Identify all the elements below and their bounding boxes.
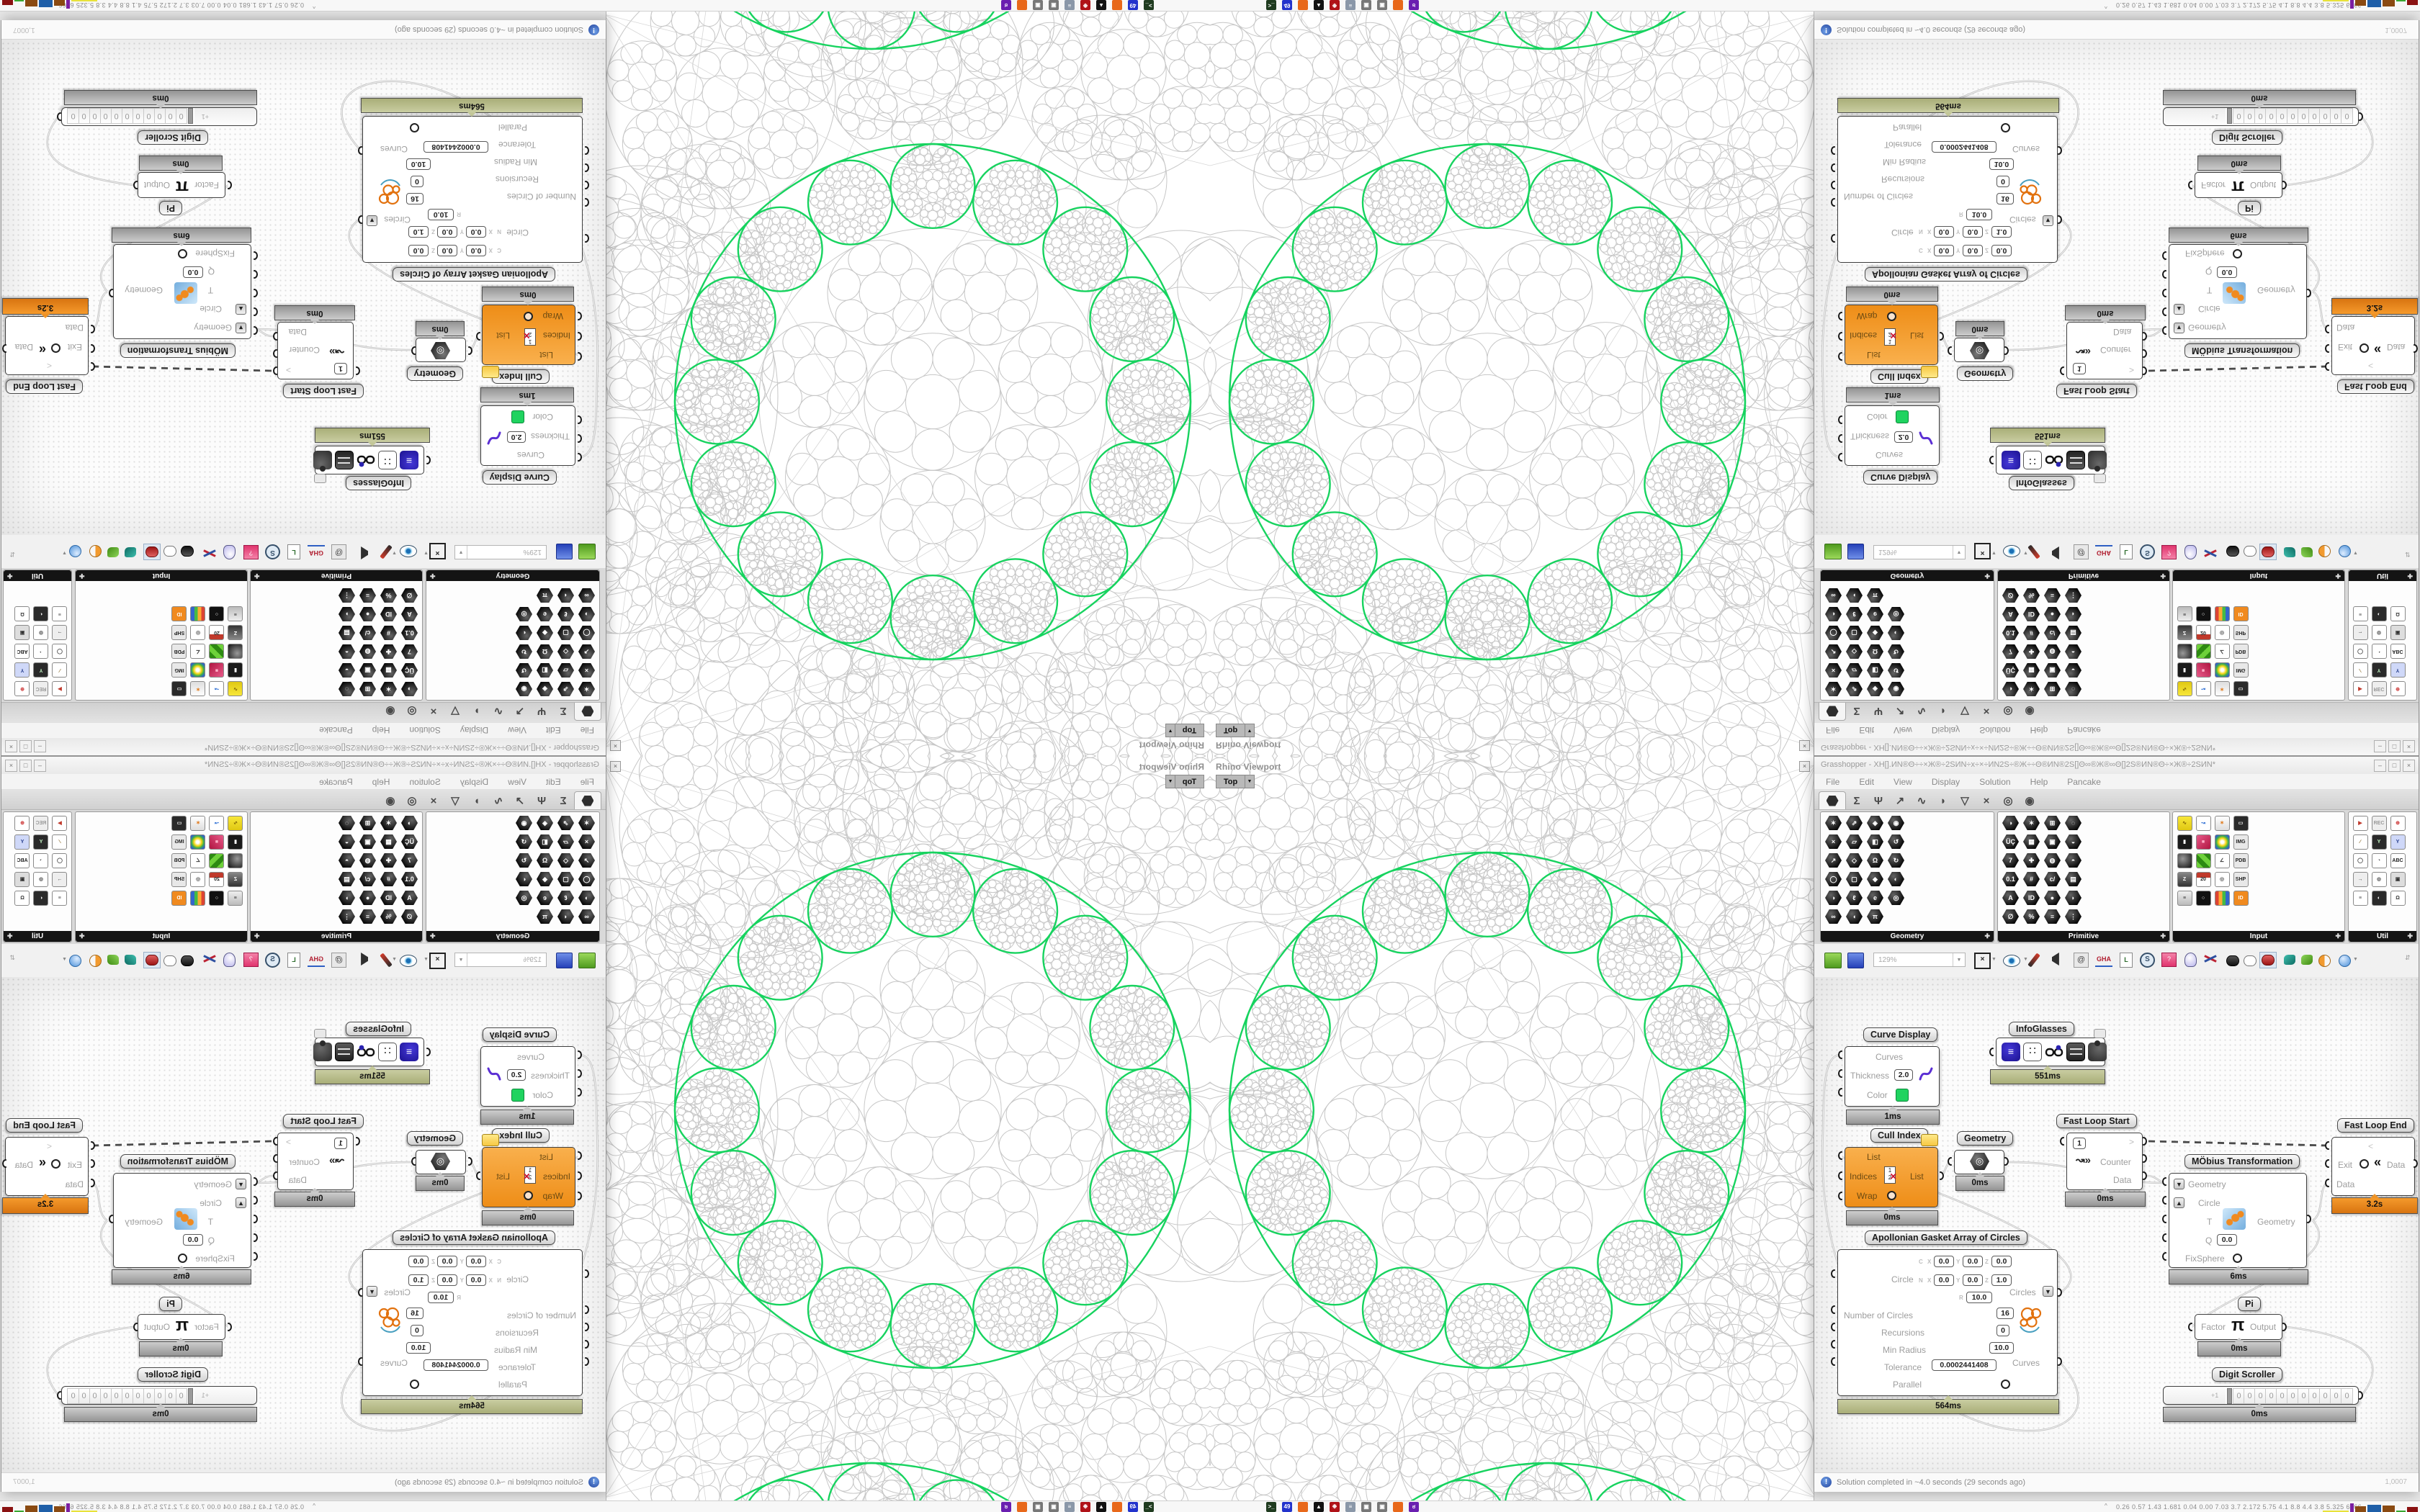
node-infoglasses[interactable]: ≡ ∷ [1996, 446, 2105, 474]
maze-app-icon[interactable]: ▣ [1049, 1502, 1059, 1512]
port-factor-in[interactable] [2188, 181, 2195, 189]
node-mobius[interactable]: ▼ Geometry ▲ Circle T Geometry Q 0.0 Fix… [113, 244, 251, 339]
digit-cell[interactable]: 0 [110, 108, 122, 124]
min-radius-value[interactable]: 10.0 [1989, 158, 2014, 170]
taskbar[interactable]: ^ 0.26 0.57 1.43 1.681 0.04 0.00 7.03 3.… [1210, 0, 2420, 12]
port-infoglasses-in[interactable] [1989, 456, 1996, 464]
port-list-in[interactable] [575, 1151, 582, 1160]
port-mobius-geometry-out[interactable] [109, 289, 116, 297]
port-apollonian-circle-in[interactable] [582, 1269, 589, 1278]
node-label-geometry[interactable]: Geometry [1957, 366, 2013, 381]
node-cull-index[interactable]: List Indices 12 × List Wrap [1845, 305, 1938, 365]
rhino-viewport[interactable]: Rhino Viewport Top ▼ × [606, 11, 1210, 756]
node-fast-loop-start[interactable]: 1 > ↝» Counter Data [277, 322, 354, 379]
c-x-value[interactable]: 0.0 [466, 1256, 486, 1267]
digit-cell[interactable]: 0 [89, 1388, 101, 1404]
n-z-value[interactable]: 1.0 [1991, 1274, 2012, 1286]
node-infoglasses[interactable]: ≡ ∷ [315, 1038, 424, 1066]
port-thickness-in[interactable] [1838, 1069, 1845, 1078]
maze-app-2-icon[interactable]: ▣ [1033, 1502, 1043, 1512]
node-label-curve-display[interactable]: Curve Display [1863, 470, 1937, 485]
node-fast-loop-start[interactable]: 1 > ↝» Counter Data [2066, 1133, 2143, 1190]
port-circles-out[interactable] [358, 215, 365, 224]
color-swatch[interactable] [511, 410, 524, 423]
min-radius-value[interactable]: 10.0 [1989, 1342, 2014, 1354]
node-label-apollonian[interactable]: Apollonian Gasket Array of Circles [393, 1230, 555, 1245]
port-indices-in[interactable] [1838, 332, 1845, 341]
port-counter-out[interactable] [2140, 349, 2147, 358]
fixsphere-toggle[interactable] [178, 1254, 187, 1263]
port-mobius-t-in[interactable] [2162, 289, 2169, 297]
n-x-value[interactable]: 0.0 [1934, 1274, 1954, 1286]
fixsphere-toggle[interactable] [2233, 1254, 2242, 1263]
node-label-digit-scroller[interactable]: Digit Scroller [138, 1367, 208, 1382]
digit-cell[interactable]: 0 [89, 108, 101, 124]
digit-cell[interactable]: 0 [2341, 108, 2353, 124]
digit-cell[interactable]: 0 [78, 108, 90, 124]
recursions-value[interactable]: 0 [1996, 176, 2009, 187]
port-geometry-out[interactable] [411, 1157, 418, 1166]
port-mobius-circle-in[interactable] [251, 1196, 258, 1205]
parallel-toggle[interactable] [2001, 123, 2010, 132]
node-label-geometry[interactable]: Geometry [407, 1131, 463, 1146]
digit-cell[interactable]: 0 [153, 1388, 166, 1404]
node-fast-loop-end[interactable]: < Exit « Data Data [2331, 316, 2415, 375]
digit-cell[interactable]: 0 [164, 108, 176, 124]
node-mobius[interactable]: ▼ Geometry ▲ Circle T Geometry Q 0.0 Fix… [2169, 244, 2307, 339]
node-label-apollonian[interactable]: Apollonian Gasket Array of Circles [393, 267, 555, 282]
terminal-app-icon[interactable]: >_ [1144, 0, 1154, 10]
port-apollonian-count-in[interactable] [582, 1305, 589, 1314]
port-digit-out[interactable] [2356, 1391, 2363, 1400]
port-output-out[interactable] [133, 1323, 140, 1331]
n-x-value[interactable]: 0.0 [466, 1274, 486, 1286]
tolerance-value[interactable]: 0.0002441408 [1932, 1359, 1996, 1371]
maze-app-2-icon[interactable]: ▣ [1377, 0, 1387, 10]
port-apollonian-circle-in[interactable] [1831, 234, 1838, 243]
port-color-in[interactable] [1838, 1088, 1845, 1097]
digit-cell[interactable]: 0 [175, 1388, 187, 1404]
node-label-digit-scroller[interactable]: Digit Scroller [2212, 1367, 2282, 1382]
exit-toggle[interactable] [2359, 343, 2369, 353]
note-bubble-icon[interactable] [314, 474, 326, 483]
node-infoglasses[interactable]: ≡ ∷ [315, 446, 424, 474]
port-mobius-fixsphere-in[interactable] [2162, 1252, 2169, 1261]
port-curves-out[interactable] [2055, 1357, 2062, 1366]
port-mobius-q-in[interactable] [251, 270, 258, 279]
note-bubble-icon[interactable] [2094, 474, 2106, 483]
c-z-value[interactable]: 0.0 [1991, 1256, 2012, 1267]
port-circles-out[interactable] [2055, 215, 2062, 224]
flame-app-2-icon[interactable] [1017, 0, 1027, 10]
port-iterations-in[interactable] [353, 1137, 360, 1146]
color-swatch[interactable] [511, 1089, 524, 1102]
digit-cell[interactable]: 0 [164, 1388, 176, 1404]
node-label-digit-scroller[interactable]: Digit Scroller [138, 130, 208, 145]
exit-toggle[interactable] [51, 1159, 60, 1169]
port-infoglasses-in[interactable] [423, 456, 431, 464]
n-y-value[interactable]: 0.0 [1963, 1274, 1983, 1286]
node-infoglasses[interactable]: ≡ ∷ [1996, 1038, 2105, 1066]
flame-app-2-icon[interactable] [1393, 1502, 1403, 1512]
node-cull-index[interactable]: List Indices 12 × List Wrap [482, 1147, 575, 1207]
digit-cell[interactable]: 0 [132, 1388, 144, 1404]
port-apollonian-tolerance-in[interactable] [1831, 1357, 1838, 1366]
port-apollonian-tolerance-in[interactable] [1831, 146, 1838, 155]
viewport-view-dropdown[interactable]: Top ▼ [1165, 724, 1204, 737]
port-geometry-in[interactable] [465, 346, 472, 355]
node-label-infoglasses[interactable]: InfoGlasses [346, 1022, 411, 1036]
taskbar[interactable]: ^ 0.26 0.57 1.43 1.681 0.04 0.00 7.03 3.… [1210, 1500, 2420, 1512]
recursions-value[interactable]: 0 [411, 1325, 423, 1336]
digit-cell[interactable]: 0 [67, 1388, 79, 1404]
port-mobius-geometry-in[interactable] [2162, 1177, 2169, 1186]
port-wrap-in[interactable] [575, 312, 582, 320]
n-x-value[interactable]: 0.0 [1934, 226, 1954, 238]
c-y-value[interactable]: 0.0 [437, 245, 457, 256]
digit-cell[interactable]: 0 [143, 108, 155, 124]
ornament-app-icon[interactable]: ❉ [1330, 0, 1340, 10]
port-fle-data-out[interactable] [2, 344, 9, 353]
port-data-in[interactable] [88, 1179, 95, 1187]
n-z-value[interactable]: 1.0 [408, 226, 429, 238]
rhino-viewport[interactable]: Rhino Viewport Top ▼ × [606, 756, 1210, 1501]
port-data-out[interactable] [2140, 332, 2147, 341]
r-value[interactable]: 10.0 [428, 1292, 454, 1303]
maze-app-2-icon[interactable]: ▣ [1377, 1502, 1387, 1512]
port-thickness-in[interactable] [575, 434, 582, 443]
parallel-toggle[interactable] [2001, 1380, 2010, 1389]
port-factor-in[interactable] [225, 1323, 232, 1331]
ornament-app-icon[interactable]: ❉ [1080, 0, 1090, 10]
n-z-value[interactable]: 1.0 [408, 1274, 429, 1286]
node-pi[interactable]: Factor π Output [2195, 172, 2282, 198]
port-mobius-geometry-out[interactable] [2304, 1215, 2311, 1223]
port-apollonian-recursions-in[interactable] [582, 1323, 589, 1331]
node-label-apollonian[interactable]: Apollonian Gasket Array of Circles [1865, 267, 2027, 282]
files-app-icon[interactable]: ≡ [1065, 0, 1075, 10]
c-x-value[interactable]: 0.0 [1934, 245, 1954, 256]
parallel-toggle[interactable] [410, 123, 419, 132]
port-mobius-circle-in[interactable] [251, 307, 258, 316]
maze-app-2-icon[interactable]: ▣ [1033, 0, 1043, 10]
maze-app-icon[interactable]: ▣ [1049, 0, 1059, 10]
port-counter-out[interactable] [2140, 1154, 2147, 1163]
port-mobius-q-in[interactable] [2162, 270, 2169, 279]
viewport-close-button[interactable]: × [1799, 740, 1810, 751]
node-geometry[interactable]: ◎ [1954, 1150, 2004, 1174]
port-digit-out[interactable] [57, 1391, 64, 1400]
port-apollonian-minradius-in[interactable] [1831, 163, 1838, 172]
warning-tag-icon[interactable] [482, 366, 499, 378]
node-curve-display[interactable]: Curves Thickness 2.0 Color [480, 405, 575, 466]
tray-collapse-icon[interactable]: ^ [2105, 3, 2107, 9]
iterations-value[interactable]: 1 [2073, 363, 2086, 374]
node-label-mobius[interactable]: MÖbius Transformation [2184, 343, 2300, 358]
port-exit-in[interactable] [88, 344, 95, 353]
number-of-circles-value[interactable]: 16 [406, 1308, 423, 1319]
port-data-out[interactable] [273, 1171, 280, 1180]
node-label-mobius[interactable]: MÖbius Transformation [2184, 1154, 2300, 1169]
maze-app-icon[interactable]: ▣ [1361, 0, 1371, 10]
c-y-value[interactable]: 0.0 [1963, 245, 1983, 256]
digit-cell[interactable]: 0 [121, 108, 133, 124]
port-digit-out[interactable] [57, 112, 64, 121]
r-value[interactable]: 10.0 [1966, 1292, 1992, 1303]
port-data-out[interactable] [273, 332, 280, 341]
node-apollonian[interactable]: C X 0.0 Y 0.0 Z 0.0 Circle N X 0.0 Y 0.0… [1837, 116, 2058, 263]
viewport-close-button[interactable]: × [1799, 761, 1810, 772]
port-color-in[interactable] [1838, 415, 1845, 424]
port-mobius-t-in[interactable] [251, 1215, 258, 1223]
node-label-cull-index[interactable]: Cull Index [1870, 1128, 1928, 1143]
node-label-fast-loop-end[interactable]: Fast Loop End [6, 379, 83, 394]
port-curves-in[interactable] [575, 453, 582, 462]
port-apollonian-count-in[interactable] [1831, 198, 1838, 207]
port-apollonian-count-in[interactable] [1831, 1305, 1838, 1314]
recursions-value[interactable]: 0 [1996, 1325, 2009, 1336]
node-curve-display[interactable]: Curves Thickness 2.0 Color [1845, 1046, 1940, 1107]
owl-app-icon[interactable]: ಠ [1001, 1502, 1011, 1512]
note-bubble-icon[interactable] [2094, 1029, 2106, 1038]
parallel-toggle[interactable] [410, 1380, 419, 1389]
port-color-in[interactable] [575, 1088, 582, 1097]
floppy-49-app-icon[interactable]: 49 [1128, 1502, 1138, 1512]
files-app-icon[interactable]: ≡ [1345, 0, 1355, 10]
digit-cell[interactable]: 0 [132, 108, 144, 124]
port-output-out[interactable] [2280, 1323, 2287, 1331]
warning-tag-icon[interactable] [1921, 366, 1938, 378]
port-factor-in[interactable] [2188, 1323, 2195, 1331]
port-output-out[interactable] [2280, 181, 2287, 189]
port-mobius-geometry-in[interactable] [251, 1177, 258, 1186]
node-label-cull-index[interactable]: Cull Index [492, 1128, 550, 1143]
port-data-in[interactable] [2325, 1179, 2332, 1187]
node-fast-loop-start[interactable]: 1 > ↝» Counter Data [2066, 322, 2143, 379]
port-geometry-out[interactable] [411, 346, 418, 355]
taskbar[interactable]: ^ 0.26 0.57 1.43 1.681 0.04 0.00 7.03 3.… [0, 0, 1210, 12]
node-label-cull-index[interactable]: Cull Index [492, 369, 550, 384]
port-curves-out[interactable] [2055, 146, 2062, 155]
viewport-view-dropdown[interactable]: Top ▼ [1216, 724, 1255, 737]
tray-collapse-icon[interactable]: ^ [2105, 1503, 2107, 1509]
port-curves-in[interactable] [1838, 1050, 1845, 1059]
port-list-out[interactable] [476, 332, 483, 341]
port-apollonian-recursions-in[interactable] [1831, 1323, 1838, 1331]
q-value[interactable]: 0.0 [183, 1234, 203, 1246]
node-label-fast-loop-start[interactable]: Fast Loop Start [283, 384, 364, 398]
number-of-circles-value[interactable]: 16 [1996, 1308, 2014, 1319]
port-curves-in[interactable] [1838, 453, 1845, 462]
digit-cell[interactable]: 0 [2341, 1388, 2353, 1404]
node-label-geometry[interactable]: Geometry [1957, 1131, 2013, 1146]
port-mobius-t-in[interactable] [2162, 1215, 2169, 1223]
flame-app-icon[interactable] [1112, 1502, 1122, 1512]
number-of-circles-value[interactable]: 16 [406, 193, 423, 204]
port-apollonian-tolerance-in[interactable] [582, 146, 589, 155]
c-x-value[interactable]: 0.0 [466, 245, 486, 256]
port-iterations-in[interactable] [2060, 366, 2067, 375]
port-color-in[interactable] [575, 415, 582, 424]
port-circles-out[interactable] [358, 1288, 365, 1297]
c-z-value[interactable]: 0.0 [1991, 245, 2012, 256]
port-apollonian-tolerance-in[interactable] [582, 1357, 589, 1366]
port-fle-data-out[interactable] [2, 1159, 9, 1168]
owl-app-icon[interactable]: ಠ [1409, 0, 1419, 10]
scroller-handle[interactable] [188, 1388, 193, 1404]
warning-tag-icon[interactable] [1921, 1134, 1938, 1146]
port-gate-in[interactable] [2325, 1141, 2332, 1150]
node-label-curve-display[interactable]: Curve Display [483, 1027, 557, 1042]
recursions-value[interactable]: 0 [411, 176, 423, 187]
port-iterations-in[interactable] [353, 366, 360, 375]
port-fle-data-out[interactable] [2411, 1159, 2418, 1168]
node-cull-index[interactable]: List Indices 12 × List Wrap [1845, 1147, 1938, 1207]
port-mobius-fixsphere-in[interactable] [251, 251, 258, 260]
port-gate-in[interactable] [88, 362, 95, 371]
port-indices-in[interactable] [575, 1171, 582, 1180]
node-fast-loop-end[interactable]: < Exit « Data Data [5, 1137, 89, 1196]
thickness-value[interactable]: 2.0 [1894, 1069, 1913, 1081]
port-indices-in[interactable] [575, 332, 582, 341]
node-digit-scroller[interactable]: +1 00000000000 [2163, 107, 2359, 126]
warning-tag-icon[interactable] [482, 1134, 499, 1146]
port-wrap-in[interactable] [1838, 1192, 1845, 1200]
viewport-close-button[interactable]: × [610, 740, 621, 751]
node-label-pi[interactable]: Pi [159, 201, 182, 215]
port-data-in[interactable] [2325, 325, 2332, 333]
note-bubble-icon[interactable] [314, 1029, 326, 1038]
port-mobius-geometry-out[interactable] [109, 1215, 116, 1223]
port-geometry-out[interactable] [2002, 1157, 2009, 1166]
node-apollonian[interactable]: C X 0.0 Y 0.0 Z 0.0 Circle N X 0.0 Y 0.0… [362, 1249, 583, 1396]
port-mobius-circle-in[interactable] [2162, 1196, 2169, 1205]
port-thickness-in[interactable] [1838, 434, 1845, 443]
node-cull-index[interactable]: List Indices 12 × List Wrap [482, 305, 575, 365]
port-infoglasses-in[interactable] [423, 1048, 431, 1056]
node-apollonian[interactable]: C X 0.0 Y 0.0 Z 0.0 Circle N X 0.0 Y 0.0… [362, 116, 583, 263]
viewport-close-button[interactable]: × [610, 761, 621, 772]
tray-collapse-icon[interactable]: ^ [313, 1503, 315, 1509]
mountain-app-icon[interactable]: ▲ [1096, 0, 1106, 10]
port-wrap-in[interactable] [1838, 312, 1845, 320]
port-apollonian-minradius-in[interactable] [582, 163, 589, 172]
c-y-value[interactable]: 0.0 [1963, 1256, 1983, 1267]
node-label-pi[interactable]: Pi [2238, 201, 2261, 215]
digit-cell[interactable]: 0 [121, 1388, 133, 1404]
fixsphere-toggle[interactable] [2233, 249, 2242, 258]
files-app-icon[interactable]: ≡ [1065, 1502, 1075, 1512]
tolerance-value[interactable]: 0.0002441408 [1932, 141, 1996, 153]
floppy-49-app-icon[interactable]: 49 [1282, 1502, 1292, 1512]
node-label-infoglasses[interactable]: InfoGlasses [2009, 476, 2074, 490]
port-curves-in[interactable] [575, 1050, 582, 1059]
port-mobius-geometry-in[interactable] [251, 326, 258, 335]
port-gate-out[interactable] [273, 1137, 280, 1146]
port-mobius-geometry-in[interactable] [2162, 326, 2169, 335]
flame-app-2-icon[interactable] [1393, 0, 1403, 10]
port-curves-out[interactable] [358, 146, 365, 155]
node-geometry[interactable]: ◎ [416, 1150, 466, 1174]
q-value[interactable]: 0.0 [183, 266, 203, 278]
port-gate-in[interactable] [2325, 362, 2332, 371]
node-label-fast-loop-start[interactable]: Fast Loop Start [283, 1114, 364, 1128]
node-label-digit-scroller[interactable]: Digit Scroller [2212, 130, 2282, 145]
port-counter-out[interactable] [273, 1154, 280, 1163]
port-circles-out[interactable] [2055, 1288, 2062, 1297]
port-mobius-geometry-out[interactable] [2304, 289, 2311, 297]
port-list-in[interactable] [1838, 1151, 1845, 1160]
node-label-fast-loop-end[interactable]: Fast Loop End [2337, 1118, 2414, 1133]
digit-cell[interactable]: 0 [99, 108, 112, 124]
node-curve-display[interactable]: Curves Thickness 2.0 Color [480, 1046, 575, 1107]
n-z-value[interactable]: 1.0 [1991, 226, 2012, 238]
port-data-out[interactable] [2140, 1171, 2147, 1180]
port-exit-in[interactable] [88, 1159, 95, 1168]
c-z-value[interactable]: 0.0 [408, 245, 429, 256]
node-label-infoglasses[interactable]: InfoGlasses [346, 476, 411, 490]
r-value[interactable]: 10.0 [428, 209, 454, 220]
terminal-app-icon[interactable]: >_ [1266, 1502, 1276, 1512]
iterations-value[interactable]: 1 [334, 363, 347, 374]
port-mobius-q-in[interactable] [251, 1233, 258, 1242]
port-infoglasses-in[interactable] [1989, 1048, 1996, 1056]
port-geometry-in[interactable] [1948, 346, 1955, 355]
r-value[interactable]: 10.0 [1966, 209, 1992, 220]
wrap-toggle[interactable] [524, 1191, 533, 1200]
port-apollonian-recursions-in[interactable] [1831, 181, 1838, 189]
thickness-value[interactable]: 2.0 [507, 1069, 526, 1081]
digit-cell[interactable]: 0 [153, 108, 166, 124]
node-label-curve-display[interactable]: Curve Display [1863, 1027, 1937, 1042]
digit-cell[interactable]: 0 [99, 1388, 112, 1404]
node-label-geometry[interactable]: Geometry [407, 366, 463, 381]
n-y-value[interactable]: 0.0 [437, 226, 457, 238]
tolerance-value[interactable]: 0.0002441408 [423, 1359, 488, 1371]
viewport-view-dropdown[interactable]: Top ▼ [1165, 775, 1204, 788]
port-list-out[interactable] [1937, 1171, 1944, 1180]
port-output-out[interactable] [133, 181, 140, 189]
node-label-apollonian[interactable]: Apollonian Gasket Array of Circles [1865, 1230, 2027, 1245]
port-list-out[interactable] [1937, 332, 1944, 341]
node-mobius[interactable]: ▼ Geometry ▲ Circle T Geometry Q 0.0 Fix… [113, 1173, 251, 1268]
node-label-infoglasses[interactable]: InfoGlasses [2009, 1022, 2074, 1036]
owl-app-icon[interactable]: ಠ [1409, 1502, 1419, 1512]
node-geometry[interactable]: ◎ [1954, 338, 2004, 362]
c-z-value[interactable]: 0.0 [408, 1256, 429, 1267]
viewport-view-dropdown[interactable]: Top ▼ [1216, 775, 1255, 788]
files-app-icon[interactable]: ≡ [1345, 1502, 1355, 1512]
port-list-out[interactable] [476, 1171, 483, 1180]
port-exit-in[interactable] [2325, 1159, 2332, 1168]
thickness-value[interactable]: 2.0 [507, 431, 526, 443]
port-apollonian-circle-in[interactable] [582, 234, 589, 243]
port-wrap-in[interactable] [575, 1192, 582, 1200]
scroller-handle[interactable] [2227, 1388, 2232, 1404]
node-digit-scroller[interactable]: +1 00000000000 [2163, 1386, 2359, 1405]
digit-cell[interactable]: 0 [143, 1388, 155, 1404]
port-fle-data-out[interactable] [2411, 344, 2418, 353]
scroller-handle[interactable] [2227, 108, 2232, 124]
rhino-viewport[interactable]: Rhino Viewport Top ▼ × [1210, 756, 1814, 1501]
port-mobius-fixsphere-in[interactable] [2162, 251, 2169, 260]
node-label-fast-loop-start[interactable]: Fast Loop Start [2056, 384, 2137, 398]
port-gate-in[interactable] [88, 1141, 95, 1150]
node-label-fast-loop-start[interactable]: Fast Loop Start [2056, 1114, 2137, 1128]
wrap-toggle[interactable] [1887, 312, 1896, 321]
rhino-viewport[interactable]: Rhino Viewport Top ▼ × [1210, 11, 1814, 756]
node-geometry[interactable]: ◎ [416, 338, 466, 362]
